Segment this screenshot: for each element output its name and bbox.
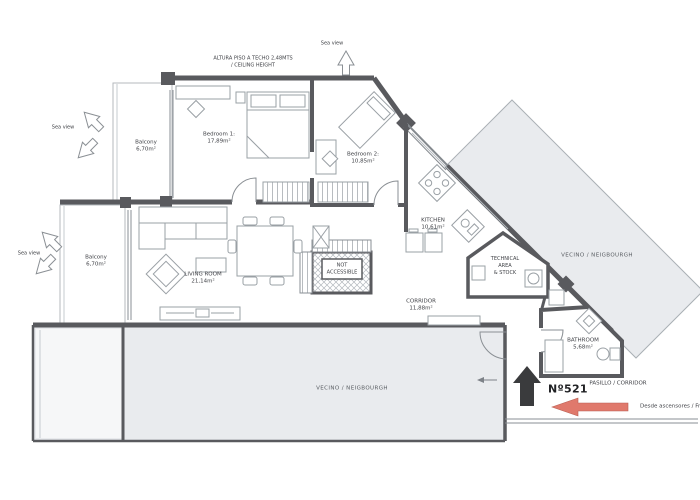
- room-area: 10,61m²: [421, 225, 445, 232]
- room-name: NOT: [327, 262, 358, 269]
- ceiling-height-line2: / CEILING HEIGHT: [213, 62, 292, 69]
- floor-plan-drawing: [0, 0, 700, 500]
- room-label-bathroom: BATHROOM 5,68m²: [567, 338, 599, 353]
- sea-view-label-left-lower: Sea view: [18, 251, 40, 258]
- sea-view-label-left-upper: Sea view: [52, 125, 74, 132]
- room-area: 6,70m²: [85, 262, 107, 269]
- room-label-balcony-top: Balcony 6,70m²: [135, 140, 157, 155]
- room-area: 17,89m²: [203, 139, 235, 146]
- room-label-technical-area: TECHNICAL AREA & STOCK: [491, 256, 519, 276]
- room-label-bedroom1: Bedroom 1: 17,89m²: [203, 132, 235, 147]
- room-area: 5,68m²: [567, 345, 599, 352]
- room-name: ACCESSIBLE: [327, 269, 358, 276]
- room-name: TECHNICAL: [491, 256, 519, 263]
- ceiling-height-note: ALTURA PISO A TECHO 2,48MTS / CEILING HE…: [213, 55, 292, 69]
- pasillo-corridor-lines: [505, 419, 698, 423]
- sea-view-label-top: Sea view: [321, 41, 343, 48]
- room-area: 6,70m²: [135, 147, 157, 154]
- neighbour-label-bottom: VECINO / NEIGBOURGH: [316, 385, 388, 392]
- floor-plan-page: ALTURA PISO A TECHO 2,48MTS / CEILING HE…: [0, 0, 700, 500]
- room-area: 21,14m²: [184, 279, 221, 286]
- room-label-not-accessible: NOT ACCESSIBLE: [327, 262, 358, 276]
- room-area: 10,85m²: [347, 159, 379, 166]
- room-label-living-room: LIVING ROOM 21,14m²: [184, 272, 221, 287]
- room-name: & STOCK: [491, 269, 519, 276]
- room-label-bedroom2: Bedroom 2: 10,85m²: [347, 152, 379, 167]
- room-name: AREA: [491, 263, 519, 270]
- unit-number-label: Nº521: [548, 383, 588, 398]
- room-label-balcony-bottom: Balcony 6,70m²: [85, 255, 107, 270]
- from-lifts-arrow-icon: [552, 398, 628, 416]
- ceiling-height-line1: ALTURA PISO A TECHO 2,48MTS: [213, 55, 292, 62]
- pasillo-corridor-label: PASILLO / CORRIDOR: [589, 380, 646, 387]
- room-label-corridor: CORRIDOR 11,88m²: [406, 299, 436, 314]
- neighbour-label-diagonal: VECINO / NEIGBOURGH: [561, 252, 633, 259]
- from-lifts-label: Desde ascensores / From lifts: [640, 403, 700, 410]
- room-area: 11,88m²: [406, 306, 436, 313]
- room-label-kitchen: KITCHEN 10,61m²: [421, 218, 445, 233]
